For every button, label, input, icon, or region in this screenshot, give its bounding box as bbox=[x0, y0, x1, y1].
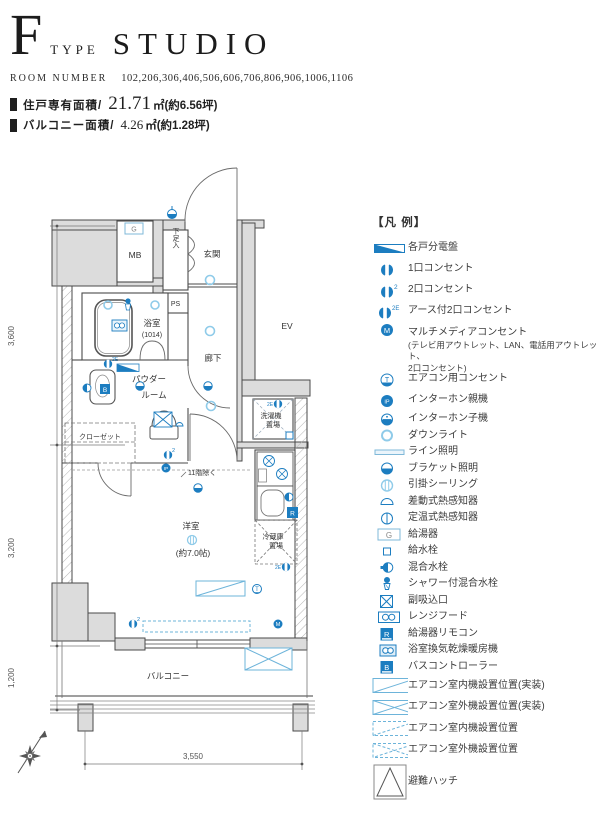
dim-3200: 3,200 bbox=[7, 537, 16, 558]
legend-item: シャワー付混合水栓 bbox=[372, 576, 606, 593]
legend-item: 2 2口コンセント bbox=[372, 280, 606, 301]
bath-dryer-icon bbox=[372, 642, 408, 658]
svg-text:M: M bbox=[276, 622, 281, 628]
legend-item: エアコン室外機設置位置 bbox=[372, 740, 606, 762]
legend-item: インターホン子機 bbox=[372, 411, 606, 428]
svg-text:2: 2 bbox=[137, 617, 140, 623]
bullet-square bbox=[10, 98, 17, 111]
compass-icon bbox=[18, 731, 47, 773]
svg-text:G: G bbox=[386, 531, 392, 540]
label-bathroom-size: (1014) bbox=[142, 332, 162, 339]
legend-item: 副吸込口 bbox=[372, 593, 606, 610]
distribution-board-icon bbox=[117, 364, 139, 372]
ac-indoor-installed-icon bbox=[372, 677, 408, 694]
svg-text:T: T bbox=[385, 377, 390, 384]
floorplan-page: F TYPE STUDIO ROOM NUMBER 102,206,306,40… bbox=[0, 0, 609, 832]
label-shoe: 下足入 bbox=[172, 228, 180, 249]
legend: 【凡 例】 各戸分電盤 1口コンセント 2 2口コンセント bbox=[372, 214, 606, 803]
dim-1200: 1,200 bbox=[7, 667, 16, 688]
svg-text:IP: IP bbox=[164, 466, 168, 471]
outlet-1-icon bbox=[372, 262, 408, 278]
outlet-2-icon: 2 bbox=[164, 448, 175, 459]
label-closet: クローゼット bbox=[79, 432, 121, 441]
heat-sensor-fixed-icon bbox=[372, 511, 408, 526]
svg-text:2E: 2E bbox=[275, 565, 282, 571]
label-powder-2: ルーム bbox=[141, 390, 166, 400]
legend-item: エアコン室外機設置位置(実装) bbox=[372, 697, 606, 719]
ceiling-hook-icon bbox=[372, 478, 408, 493]
water-heater-icon: G bbox=[372, 527, 408, 542]
legend-item: 定温式熱感知器 bbox=[372, 510, 606, 527]
unit-area-label: 住戸専有面積/ bbox=[23, 97, 102, 113]
label-mb: MB bbox=[129, 250, 142, 260]
unit-area-unit: ㎡(約6.56坪) bbox=[153, 97, 218, 113]
svg-text:IP: IP bbox=[384, 399, 390, 405]
label-bathroom: 浴室 bbox=[143, 318, 161, 328]
ceiling-hook-icon bbox=[188, 536, 197, 545]
svg-text:B: B bbox=[384, 663, 389, 672]
escape-hatch-icon bbox=[372, 763, 408, 801]
svg-text:2E: 2E bbox=[112, 357, 119, 363]
heater-remote-icon: R bbox=[372, 626, 408, 642]
legend-item: ダウンライト bbox=[372, 428, 606, 445]
legend-item: レンジフード bbox=[372, 609, 606, 626]
legend-item: B バスコントローラー bbox=[372, 659, 606, 676]
aircon-outlet-icon: T bbox=[372, 372, 408, 388]
distribution-board-icon bbox=[372, 242, 408, 255]
room-number-label: ROOM NUMBER bbox=[10, 73, 107, 84]
suction-port-icon bbox=[154, 412, 172, 427]
label-corridor: 廊下 bbox=[204, 353, 222, 363]
bath-controller-icon: B bbox=[372, 659, 408, 675]
svg-text:G: G bbox=[131, 227, 136, 234]
bullet-square bbox=[10, 119, 17, 132]
svg-text:R: R bbox=[384, 630, 390, 639]
suction-port-icon bbox=[372, 593, 408, 609]
title-block: F TYPE STUDIO ROOM NUMBER 102,206,306,40… bbox=[10, 6, 390, 133]
intercom-main-icon: IP bbox=[372, 393, 408, 409]
balcony-area-row: バルコニー面積/ 4.26 ㎡(約1.28坪) bbox=[10, 117, 390, 133]
heater-remote-icon: R bbox=[287, 507, 298, 518]
outlet-2-icon: 2 bbox=[372, 283, 408, 299]
intercom-sub-icon bbox=[372, 412, 408, 427]
kitchen-stove bbox=[257, 452, 293, 486]
multimedia-outlet-icon: M bbox=[274, 620, 283, 629]
range-hood-icon bbox=[372, 609, 408, 625]
type-letter: F bbox=[10, 6, 42, 64]
legend-item: 引掛シーリング bbox=[372, 477, 606, 494]
legend-item: 各戸分電盤 bbox=[372, 238, 606, 259]
bracket-light-icon bbox=[372, 461, 408, 476]
shower-mixer-tap-icon bbox=[372, 576, 408, 592]
room-numbers: 102,206,306,406,506,606,706,806,906,1006… bbox=[121, 73, 353, 84]
label-powder-1: パウダー bbox=[132, 374, 166, 384]
label-balcony: バルコニー bbox=[147, 671, 189, 681]
legend-title: 【凡 例】 bbox=[372, 214, 606, 230]
fridge-space bbox=[255, 520, 297, 564]
label-ev: EV bbox=[281, 321, 293, 331]
water-tap-icon bbox=[372, 544, 408, 559]
floor-plan: G bbox=[0, 158, 360, 830]
unit-area-row: 住戸専有面積/ 21.71 ㎡(約6.56坪) bbox=[10, 93, 390, 115]
balcony-area-label: バルコニー面積/ bbox=[23, 117, 114, 133]
svg-text:M: M bbox=[384, 326, 390, 335]
plan-title: F TYPE STUDIO bbox=[10, 6, 390, 64]
svg-text:2E: 2E bbox=[267, 402, 274, 408]
legend-item: R 給湯器リモコン bbox=[372, 626, 606, 643]
label-fridge-1: 冷蔵庫 bbox=[263, 532, 284, 541]
dim-3600: 3,600 bbox=[7, 325, 16, 346]
unit-area-value: 21.71 bbox=[108, 93, 151, 115]
water-heater-icon: G bbox=[125, 223, 143, 234]
outlet-2e-icon: 2E bbox=[372, 304, 408, 320]
ac-outdoor-installed-icon bbox=[372, 699, 408, 716]
dim-3550: 3,550 bbox=[183, 752, 204, 761]
label-entrance: 玄関 bbox=[203, 249, 220, 259]
svg-text:T: T bbox=[255, 587, 259, 593]
legend-item: 差動式熱感知器 bbox=[372, 494, 606, 511]
legend-item: 1口コンセント bbox=[372, 259, 606, 280]
multimedia-outlet-icon: M bbox=[372, 322, 408, 338]
legend-item: エアコン室内機設置位置 bbox=[372, 718, 606, 740]
intercom-main-icon: IP bbox=[162, 464, 171, 473]
legend-item: ブラケット照明 bbox=[372, 461, 606, 478]
ac-indoor-installed bbox=[196, 581, 245, 596]
svg-text:2E: 2E bbox=[392, 306, 399, 312]
svg-text:B: B bbox=[103, 387, 107, 394]
legend-item: M マルチメディアコンセント (テレビ用アウトレット、LAN、電話用アウトレット… bbox=[372, 322, 606, 369]
label-note-11f: 11階除く bbox=[188, 468, 216, 477]
heat-sensor-icon bbox=[176, 423, 183, 426]
ac-outdoor-installed bbox=[245, 648, 292, 670]
balcony-area-unit: ㎡(約1.28坪) bbox=[145, 117, 210, 133]
label-washer-2: 置場 bbox=[266, 420, 280, 429]
label-main-room-size: (約7.0帖) bbox=[176, 548, 211, 558]
label-washer-1: 洗濯機 bbox=[261, 411, 282, 420]
mixer-tap-icon bbox=[372, 560, 408, 575]
line-light-icon bbox=[372, 445, 408, 460]
outlet-2-icon: 2 bbox=[129, 617, 140, 628]
ac-indoor-position-icon bbox=[372, 720, 408, 737]
heat-sensor-differential-icon bbox=[372, 494, 408, 509]
type-word: TYPE bbox=[50, 42, 99, 58]
legend-item: 避難ハッチ bbox=[372, 761, 606, 803]
balcony-area-value: 4.26 bbox=[120, 117, 143, 133]
shower-mixer-tap-icon bbox=[125, 298, 130, 310]
intercom-sub-icon bbox=[168, 206, 177, 219]
room-number-row: ROOM NUMBER 102,206,306,406,506,606,706,… bbox=[10, 68, 390, 86]
legend-item: 浴室換気乾燥暖房機 bbox=[372, 642, 606, 659]
legend-item: 混合水栓 bbox=[372, 560, 606, 577]
legend-item: G 給湯器 bbox=[372, 527, 606, 544]
closet-area bbox=[65, 423, 135, 463]
legend-item: 給水栓 bbox=[372, 543, 606, 560]
label-ps: PS bbox=[171, 301, 181, 308]
svg-text:2: 2 bbox=[172, 448, 175, 454]
legend-item: ライン照明 bbox=[372, 444, 606, 461]
svg-text:R: R bbox=[290, 511, 295, 518]
label-fridge-2: 置場 bbox=[269, 541, 283, 550]
water-tap-icon bbox=[286, 432, 293, 439]
legend-item: 2E アース付2口コンセント bbox=[372, 301, 606, 322]
aircon-outlet-icon: T bbox=[253, 585, 262, 594]
bath-dryer-icon bbox=[112, 320, 127, 331]
legend-item: エアコン室内機設置位置(実装) bbox=[372, 675, 606, 697]
downlight-icon bbox=[372, 428, 408, 443]
bath-controller-icon: B bbox=[100, 384, 110, 394]
ac-outdoor-position-icon bbox=[372, 742, 408, 759]
type-name: STUDIO bbox=[113, 26, 275, 62]
legend-item: IP インターホン親機 bbox=[372, 390, 606, 411]
label-main-room: 洋室 bbox=[182, 521, 200, 531]
svg-text:2: 2 bbox=[394, 284, 398, 291]
